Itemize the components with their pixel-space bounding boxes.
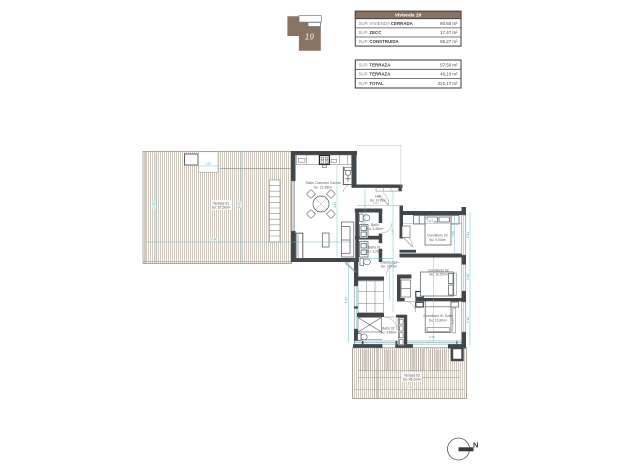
svg-text:4,44: 4,44 [333, 202, 337, 208]
svg-text:57,50 m²: 57,50 m² [440, 62, 458, 67]
svg-text:Su: 13,80m²: Su: 13,80m² [429, 318, 448, 322]
svg-text:Su: 57,50m²: Su: 57,50m² [212, 206, 231, 210]
svg-text:SUP. TERRAZA: SUP. TERRAZA [359, 72, 392, 77]
svg-text:95,27 m²: 95,27 m² [440, 39, 458, 44]
svg-text:1,11: 1,11 [361, 247, 365, 253]
svg-text:1,50: 1,50 [205, 162, 211, 166]
svg-text:6,22: 6,22 [237, 202, 241, 208]
svg-text:Su: 4,88m²: Su: 4,88m² [380, 331, 397, 335]
svg-text:2,56: 2,56 [451, 318, 455, 324]
svg-text:SUP. TERRAZA: SUP. TERRAZA [359, 62, 392, 67]
svg-text:2,67: 2,67 [373, 201, 379, 205]
svg-text:SUP. CONSTRUIDA: SUP. CONSTRUIDA [359, 39, 400, 44]
svg-text:1,11: 1,11 [361, 221, 365, 227]
svg-text:Su: 3,90m²: Su: 3,90m² [381, 265, 398, 269]
svg-text:SUP. VIVIENDA CERRADA: SUP. VIVIENDA CERRADA [359, 21, 414, 26]
svg-text:4,18: 4,18 [152, 202, 156, 208]
svg-text:Su: 9,00m²: Su: 9,00m² [429, 238, 446, 242]
svg-text:2,43: 2,43 [390, 229, 394, 235]
svg-text:80,60 m²: 80,60 m² [440, 21, 458, 26]
svg-text:222,17 m²: 222,17 m² [438, 81, 458, 86]
svg-text:3,10: 3,10 [466, 317, 470, 323]
svg-text:Vivienda 19: Vivienda 19 [395, 13, 422, 19]
svg-text:46,10 m²: 46,10 m² [440, 72, 458, 77]
svg-text:2,50: 2,50 [429, 335, 435, 339]
svg-text:Su: 3,28m²: Su: 3,28m² [366, 250, 383, 254]
svg-text:3,62: 3,62 [427, 219, 433, 223]
svg-text:2,33: 2,33 [452, 278, 456, 284]
svg-text:9,04: 9,04 [210, 238, 216, 242]
svg-text:Su: 10,50m²: Su: 10,50m² [429, 273, 448, 277]
svg-text:19: 19 [305, 32, 315, 42]
svg-text:Su: 21,58m²: Su: 21,58m² [314, 185, 333, 189]
svg-text:1,45: 1,45 [345, 297, 349, 303]
svg-text:2,81: 2,81 [466, 232, 470, 238]
svg-text:SUP. TOTAL: SUP. TOTAL [359, 81, 384, 86]
svg-text:Su: 46,10m²: Su: 46,10m² [403, 378, 422, 382]
svg-text:Su: 3,28m²: Su: 3,28m² [367, 227, 384, 231]
svg-text:7,64: 7,64 [407, 385, 413, 389]
svg-text:N: N [473, 441, 478, 450]
svg-text:3,05: 3,05 [451, 231, 455, 237]
svg-text:2,96: 2,96 [466, 274, 470, 280]
svg-text:SUP. ZECC: SUP. ZECC [359, 30, 383, 35]
svg-text:17,47 m²: 17,47 m² [440, 30, 458, 35]
